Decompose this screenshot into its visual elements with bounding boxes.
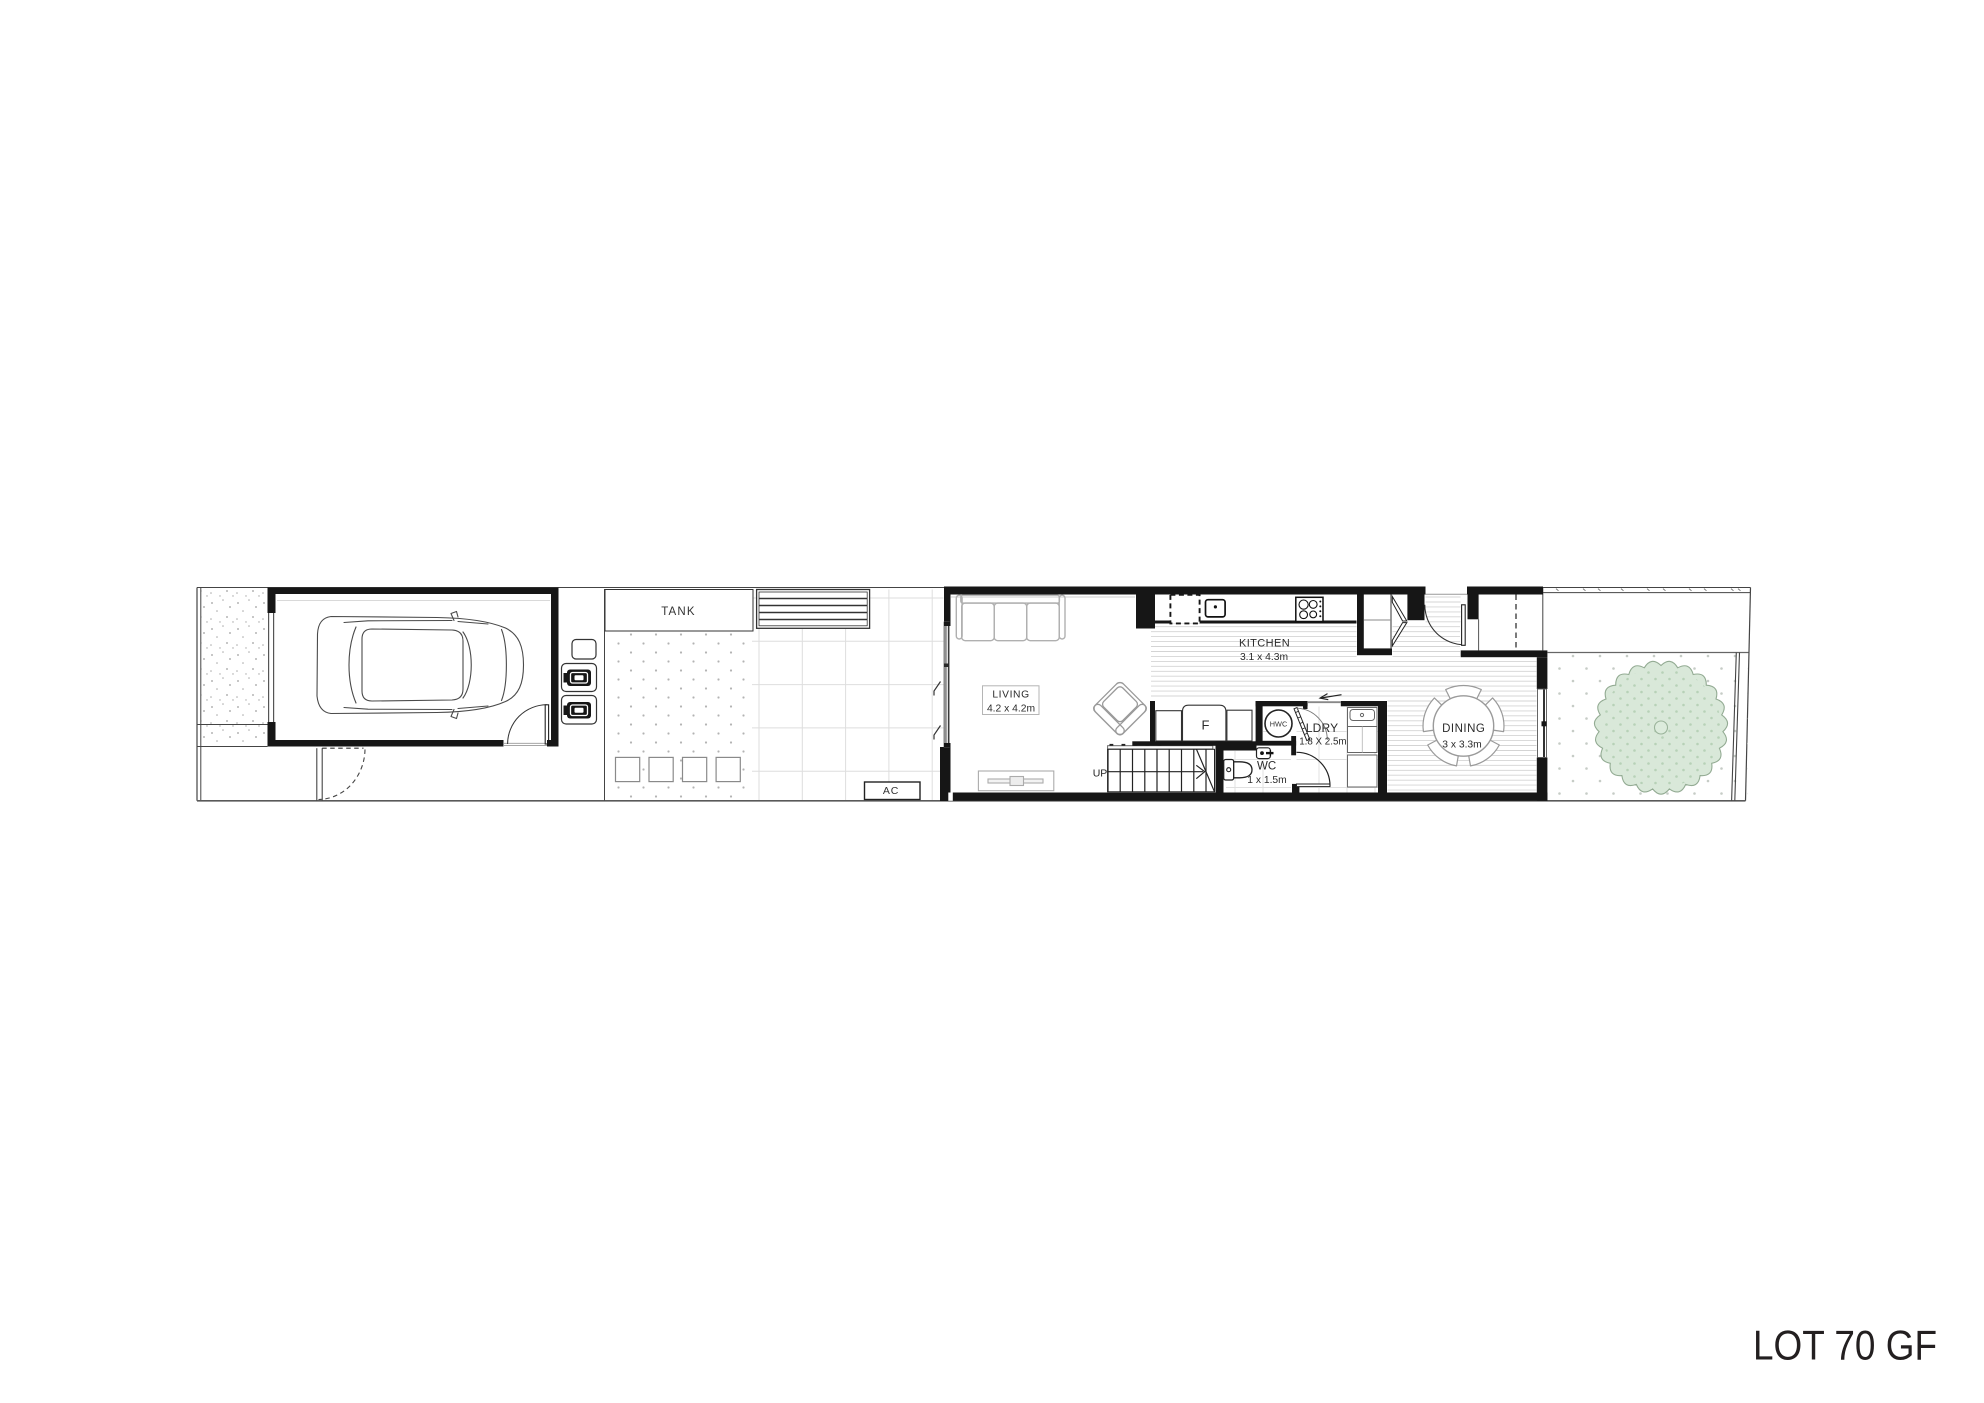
svg-text:LOT 70 GF: LOT 70 GF	[1753, 1322, 1937, 1369]
svg-text:1 x 1.5m: 1 x 1.5m	[1247, 775, 1287, 786]
svg-text:4.2 x 4.2m: 4.2 x 4.2m	[987, 703, 1035, 714]
svg-text:LDRY: LDRY	[1306, 721, 1339, 735]
svg-text:3 x 3.3m: 3 x 3.3m	[1442, 740, 1482, 751]
svg-text:HWC: HWC	[1270, 719, 1287, 728]
svg-text:AC: AC	[883, 785, 899, 797]
svg-text:F: F	[1202, 718, 1210, 733]
svg-text:KITCHEN: KITCHEN	[1239, 638, 1290, 650]
svg-text:DINING: DINING	[1442, 723, 1485, 735]
svg-text:UP: UP	[1093, 768, 1108, 780]
svg-text:1.8 X 2.5m: 1.8 X 2.5m	[1299, 736, 1346, 747]
svg-text:WC: WC	[1257, 760, 1276, 772]
svg-text:TANK: TANK	[661, 606, 696, 618]
svg-text:3.1 x 4.3m: 3.1 x 4.3m	[1240, 652, 1288, 663]
svg-text:LIVING: LIVING	[992, 689, 1029, 700]
